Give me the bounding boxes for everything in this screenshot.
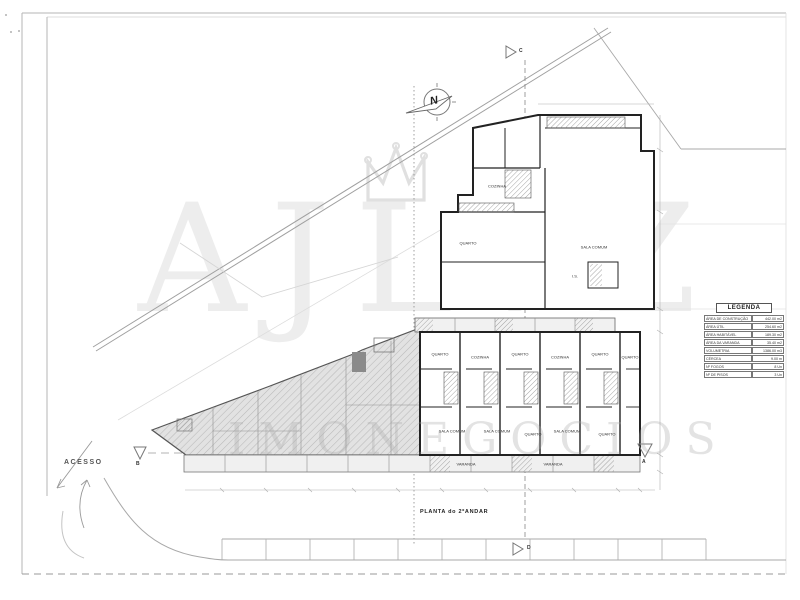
- room-label: QUARTO: [599, 432, 616, 437]
- upper-apartment-block: [441, 115, 654, 309]
- legend-row: ÁREA ÚTIL 254.60 m2: [704, 323, 784, 330]
- legend-row-value: 442.00 m2: [752, 315, 784, 322]
- room-label: QUARTO: [592, 352, 609, 357]
- legend-row-value: 189.30 m2: [752, 331, 784, 338]
- legend-row-label: Nº DE PISOS: [704, 371, 752, 378]
- legend-row-value: 3 Un: [752, 371, 784, 378]
- legend-row-label: VOLUMETRIA: [704, 347, 752, 354]
- legend-row-label: ÁREA HABITÁVEL: [704, 331, 752, 338]
- section-marker-c: [506, 46, 516, 58]
- legend-row-label: CÉRCEA: [704, 355, 752, 362]
- legend-box: LEGENDA ÁREA DE CONSTRUÇÃO 442.00 m2 ÁRE…: [704, 303, 784, 379]
- legend-row: ÁREA DA VARANDA 35.40 m2: [704, 339, 784, 346]
- room-label: SALA COMUM: [581, 245, 608, 250]
- section-letter-b: B: [136, 461, 140, 467]
- legend-row: VOLUMETRIA 1386.00 m3: [704, 347, 784, 354]
- legend-row: Nº DE PISOS 3 Un: [704, 371, 784, 378]
- room-label: VARANDA: [543, 462, 562, 467]
- room-label: QUARTO: [622, 355, 639, 360]
- room-label: QUARTO: [512, 352, 529, 357]
- room-label: COZINHA: [551, 355, 569, 360]
- legend-row: Nº FOGOS 8 Un: [704, 363, 784, 370]
- section-letter-c: C: [519, 48, 523, 54]
- room-label: VARANDA: [456, 462, 475, 467]
- room-label: SALA COMUM: [554, 429, 581, 434]
- legend-row-value: 35.40 m2: [752, 339, 784, 346]
- room-label: COZINHA: [488, 184, 506, 189]
- section-marker-d: [513, 543, 523, 555]
- legend-row: CÉRCEA 9.00 m: [704, 355, 784, 362]
- legend-row-value: 1386.00 m3: [752, 347, 784, 354]
- legend-row-label: Nº FOGOS: [704, 363, 752, 370]
- acesso-label: ACESSO: [64, 459, 103, 466]
- room-label: QUARTO: [525, 432, 542, 437]
- legend-row: ÁREA DE CONSTRUÇÃO 442.00 m2: [704, 315, 784, 322]
- room-label: QUARTO: [460, 241, 477, 246]
- plan-sheet: AJLVZ: [0, 0, 800, 600]
- site-plan-drawing: [0, 0, 800, 600]
- legend-row-value: 8 Un: [752, 363, 784, 370]
- legend-row-value: 254.60 m2: [752, 323, 784, 330]
- legend-title: LEGENDA: [716, 303, 772, 313]
- room-label: COZINHA: [471, 355, 489, 360]
- legend-row-label: ÁREA DA VARANDA: [704, 339, 752, 346]
- legend-row-value: 9.00 m: [752, 355, 784, 362]
- room-label: I.S.: [572, 274, 578, 279]
- legend-row: ÁREA HABITÁVEL 189.30 m2: [704, 331, 784, 338]
- legend-row-label: ÁREA ÚTIL: [704, 323, 752, 330]
- section-marker-b: [134, 447, 146, 459]
- section-letter-a: A: [642, 459, 646, 465]
- plan-title: PLANTA do 2ºANDAR: [420, 509, 488, 515]
- room-label: SALA COMUM: [484, 429, 511, 434]
- room-label: SALA COMUM: [439, 429, 466, 434]
- watermark-subword: IMONEGOCIOS: [228, 416, 729, 464]
- room-label: QUARTO: [432, 352, 449, 357]
- section-letter-d: D: [527, 545, 531, 551]
- legend-row-label: ÁREA DE CONSTRUÇÃO: [704, 315, 752, 322]
